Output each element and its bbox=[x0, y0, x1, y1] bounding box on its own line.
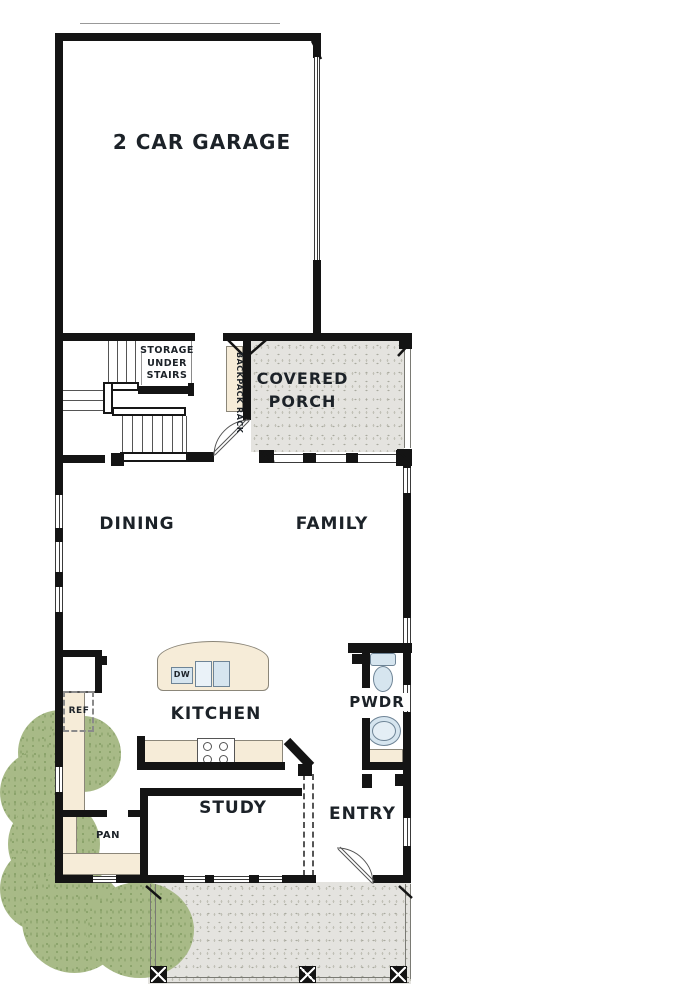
stair-tread bbox=[172, 416, 173, 454]
window bbox=[184, 876, 205, 883]
window bbox=[403, 618, 411, 643]
window bbox=[55, 767, 63, 792]
wall bbox=[111, 453, 124, 466]
stair-tread bbox=[56, 410, 104, 411]
stair-tread bbox=[162, 416, 163, 454]
wall bbox=[55, 528, 63, 542]
wall bbox=[55, 455, 105, 463]
entry-label: ENTRY bbox=[329, 804, 393, 824]
wall bbox=[298, 764, 312, 776]
window bbox=[274, 454, 303, 463]
backpack-rack-label: BACKPACK RACK bbox=[216, 351, 244, 435]
toilet-tank bbox=[370, 653, 396, 666]
kitchen-label: KITCHEN bbox=[170, 704, 262, 724]
wall bbox=[55, 810, 107, 817]
storage-label: STORAGE UNDER STAIRS bbox=[134, 345, 200, 383]
stair-edge bbox=[186, 416, 187, 454]
window bbox=[93, 876, 116, 883]
wall bbox=[137, 736, 145, 770]
wall bbox=[362, 653, 370, 688]
wall bbox=[313, 33, 321, 58]
covered-porch-label: COVERED PORCH bbox=[250, 367, 355, 413]
stair-tread bbox=[126, 337, 127, 384]
family-label: FAMILY bbox=[292, 514, 372, 534]
burner bbox=[219, 742, 228, 751]
wall bbox=[373, 875, 411, 883]
stair-tread bbox=[152, 416, 153, 454]
wall bbox=[303, 453, 316, 463]
wall bbox=[55, 572, 63, 587]
pantry-label: PAN bbox=[91, 830, 125, 842]
porch-edge bbox=[404, 348, 411, 448]
porch-post bbox=[390, 966, 407, 983]
window bbox=[358, 454, 396, 463]
wall bbox=[55, 33, 320, 41]
stair-rail bbox=[188, 383, 194, 396]
floor-plan: 2 CAR GARAGE STORAGE UNDER STAIRS BACKPA… bbox=[0, 0, 693, 989]
wall bbox=[313, 260, 321, 340]
garage-label: 2 CAR GARAGE bbox=[97, 130, 307, 154]
porch-post bbox=[397, 449, 412, 463]
porch-edge bbox=[152, 977, 409, 983]
stair-tread bbox=[142, 416, 143, 454]
porch-post bbox=[150, 966, 167, 983]
window bbox=[316, 454, 346, 463]
wall bbox=[55, 792, 63, 883]
garage-door bbox=[314, 57, 320, 260]
stair-stringer bbox=[112, 407, 186, 416]
window bbox=[259, 876, 282, 883]
bush bbox=[86, 882, 194, 978]
roof-line bbox=[80, 23, 280, 24]
wall bbox=[140, 875, 184, 883]
porch-post bbox=[299, 966, 316, 983]
powder-sink-basin bbox=[372, 721, 396, 741]
porch-post bbox=[399, 333, 412, 349]
stair-tread bbox=[117, 337, 118, 384]
wall bbox=[55, 333, 195, 341]
wall bbox=[348, 643, 412, 653]
wall bbox=[55, 33, 63, 495]
wall bbox=[188, 452, 214, 462]
wall bbox=[140, 793, 148, 882]
powder-label: PWDR bbox=[346, 693, 408, 711]
wall bbox=[55, 612, 63, 767]
porch-edge bbox=[150, 884, 156, 979]
dining-label: DINING bbox=[93, 514, 181, 534]
wall bbox=[346, 453, 358, 463]
pantry-shelf bbox=[61, 853, 141, 875]
wall bbox=[128, 810, 146, 817]
wall bbox=[55, 875, 93, 883]
window bbox=[55, 587, 63, 612]
pantry-shelf bbox=[61, 812, 77, 856]
refrigerator-label: REF bbox=[64, 706, 94, 717]
wall bbox=[249, 875, 259, 883]
toilet-bowl bbox=[373, 666, 393, 692]
stair-stringer bbox=[120, 452, 188, 462]
window bbox=[55, 542, 63, 572]
wall bbox=[205, 875, 214, 883]
stair-tread bbox=[56, 400, 104, 401]
wall bbox=[395, 774, 403, 786]
wall bbox=[140, 788, 302, 796]
wall bbox=[259, 450, 274, 463]
dishwasher-label: DW bbox=[171, 670, 193, 680]
island-sink bbox=[213, 661, 230, 687]
window bbox=[403, 818, 411, 846]
wall bbox=[137, 762, 285, 770]
porch-edge bbox=[405, 884, 411, 979]
wall bbox=[352, 654, 362, 664]
stair-tread bbox=[182, 416, 183, 454]
island-sink bbox=[195, 661, 212, 687]
study-label: STUDY bbox=[197, 798, 269, 818]
window bbox=[214, 876, 249, 883]
stair-tread bbox=[132, 416, 133, 454]
window bbox=[403, 468, 411, 493]
wall bbox=[403, 493, 411, 618]
wall bbox=[282, 875, 316, 883]
wall bbox=[362, 774, 372, 788]
window bbox=[55, 495, 63, 528]
stair-rail bbox=[138, 386, 190, 394]
wall bbox=[223, 333, 411, 341]
wall bbox=[98, 656, 107, 665]
wall bbox=[362, 762, 411, 770]
burner bbox=[203, 742, 212, 751]
stair-tread bbox=[56, 390, 104, 391]
cased-opening bbox=[303, 774, 314, 876]
stair-tread bbox=[108, 337, 109, 384]
stair-tread bbox=[122, 416, 123, 454]
